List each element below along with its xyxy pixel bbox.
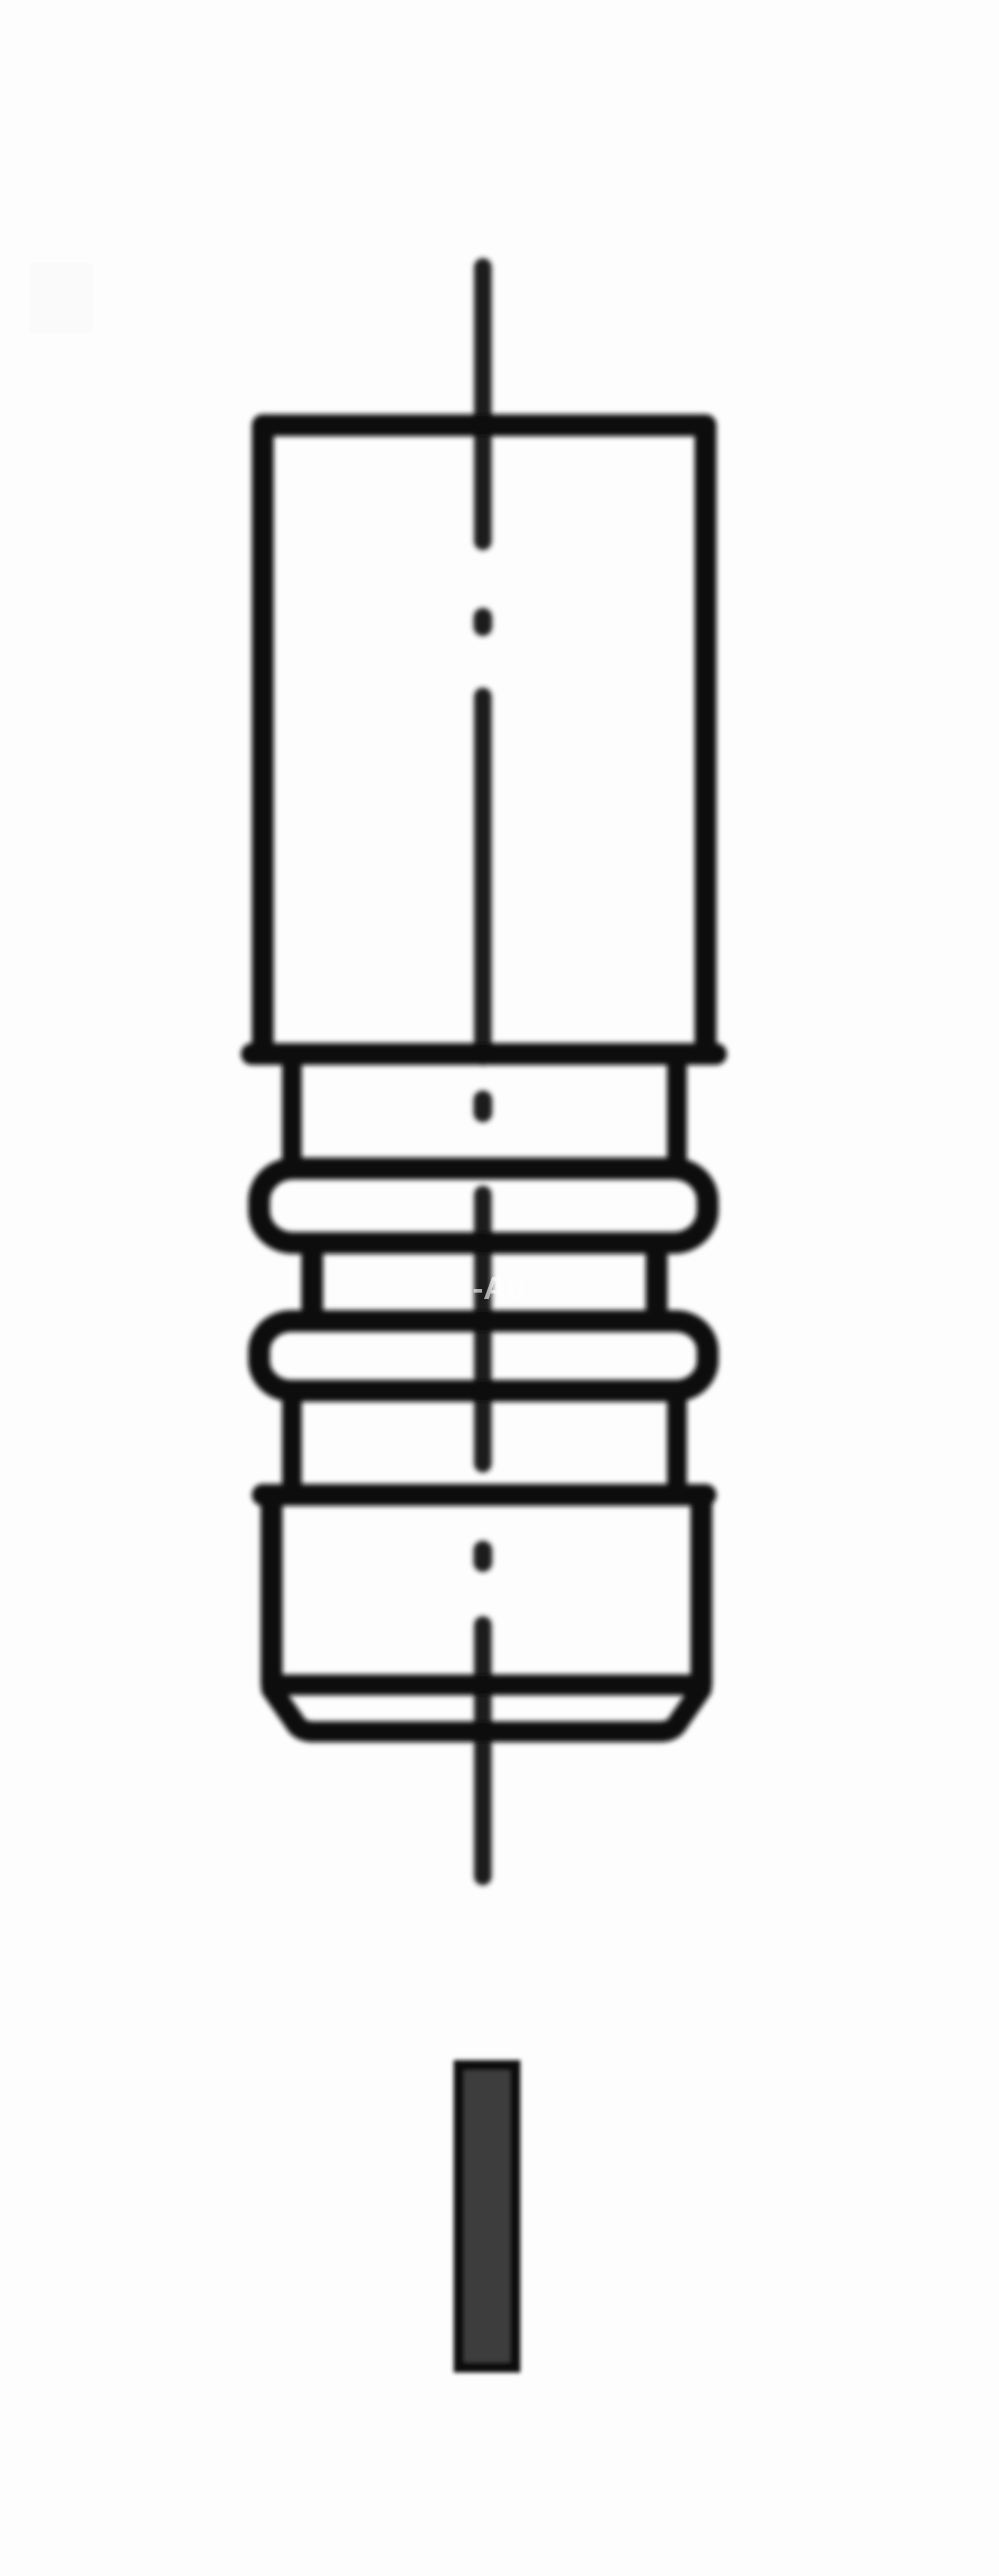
svg-text:-Au: -Au bbox=[472, 1271, 526, 1306]
